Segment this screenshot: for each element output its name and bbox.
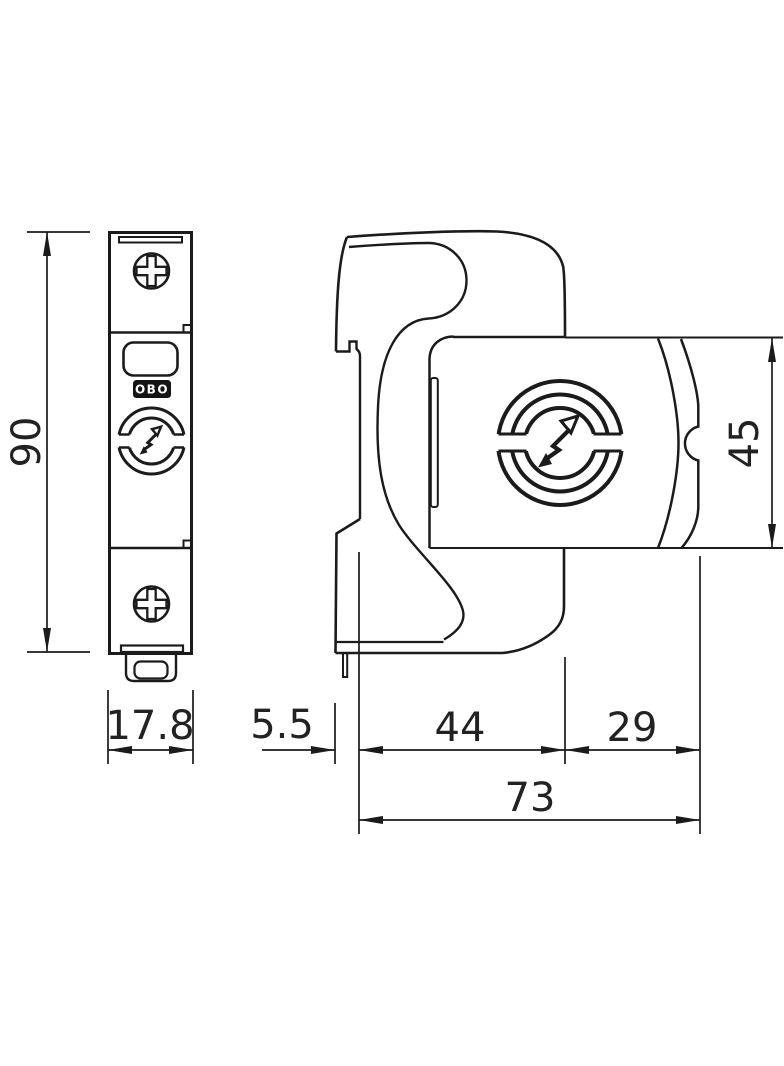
surge-logo-front xyxy=(116,408,187,474)
dim-label-44: 44 xyxy=(435,705,486,751)
dim-label-17-8: 17.8 xyxy=(105,703,194,749)
obo-badge: OBO xyxy=(133,380,171,398)
dim-label-29: 29 xyxy=(607,705,658,751)
dim-label-5-5: 5.5 xyxy=(250,702,314,748)
technical-drawing: OBO xyxy=(0,0,784,1066)
obo-badge-label: OBO xyxy=(135,383,169,397)
drawing-svg: OBO xyxy=(0,0,784,1066)
dim-label-90: 90 xyxy=(4,417,50,468)
dim-label-73: 73 xyxy=(505,775,556,821)
drawing-background xyxy=(0,0,784,1066)
dim-label-45: 45 xyxy=(722,418,768,469)
